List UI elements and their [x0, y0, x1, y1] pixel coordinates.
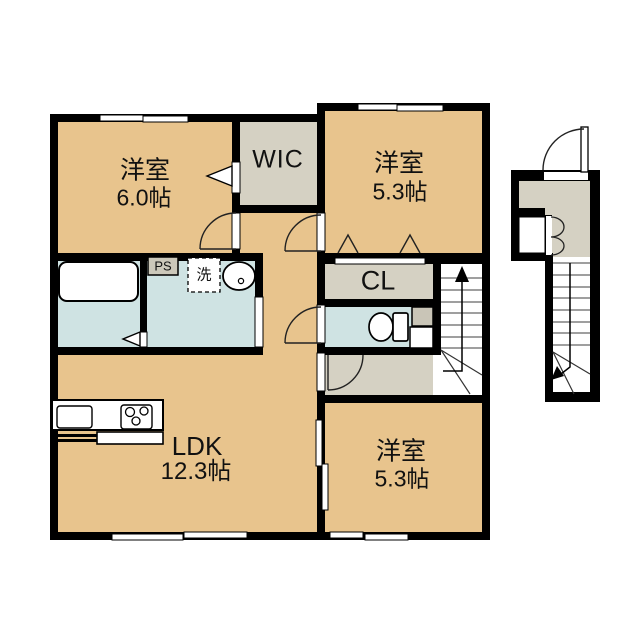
washbasin — [223, 262, 255, 290]
wall — [590, 170, 600, 402]
doorway — [317, 213, 325, 251]
wall — [232, 205, 325, 213]
wall — [317, 299, 433, 307]
wall — [317, 395, 490, 403]
window — [365, 534, 408, 540]
toilet-counter — [410, 327, 433, 348]
sliding-door — [255, 297, 263, 347]
window — [397, 105, 443, 111]
counter-edge — [50, 439, 97, 442]
window — [358, 104, 398, 110]
counter-edge — [50, 434, 97, 437]
doorway — [317, 305, 325, 343]
wall — [433, 253, 441, 355]
ldk-label: LDK — [172, 433, 223, 459]
laundry-label: 洗 — [196, 268, 211, 283]
closet-label: CL — [361, 268, 396, 295]
bedroom-se-label: 洋室 — [376, 440, 426, 465]
bedroom-se-size: 5.3帖 — [375, 468, 430, 491]
entrance-doorway — [544, 172, 588, 180]
sliding-door-leaf — [322, 464, 328, 510]
entrance-block — [511, 127, 600, 402]
floor-plan-drawing — [0, 0, 640, 640]
wall — [482, 103, 490, 540]
toilet-cabinet — [412, 307, 433, 326]
window — [112, 534, 183, 540]
wall — [50, 347, 263, 355]
entry-storage — [519, 217, 545, 253]
bathtub — [59, 262, 138, 301]
toilet-tank — [393, 313, 408, 341]
kitchen-sink — [57, 406, 92, 428]
bedroom-ne-label: 洋室 — [374, 152, 424, 177]
doorway — [232, 213, 240, 249]
ldk-size: 12.3帖 — [161, 460, 232, 484]
entrance-door-leaf — [581, 127, 588, 172]
closet-doorway — [546, 216, 552, 255]
window — [330, 532, 363, 538]
doorway — [317, 353, 325, 391]
toilet-bowl — [369, 313, 393, 341]
wall — [511, 208, 545, 217]
entrance-door-arc — [543, 129, 584, 170]
wic-label: WIC — [252, 148, 304, 173]
bedroom-nw-size: 6.0帖 — [117, 187, 172, 210]
floor-plan: 洋室 6.0帖 WIC 洋室 5.3帖 CL LDK 12.3帖 洋室 5.3帖… — [0, 0, 640, 640]
hall-floor — [325, 355, 433, 395]
bedroom-ne-size: 5.3帖 — [373, 181, 428, 204]
wic-opening — [232, 162, 240, 193]
wall — [50, 114, 58, 540]
window — [143, 116, 188, 122]
corridor-floor — [263, 253, 317, 355]
pipe-space-label: PS — [154, 260, 171, 273]
closet-opening — [335, 258, 425, 264]
window — [184, 532, 247, 538]
sliding-door-leaf — [316, 420, 322, 466]
counter-front — [97, 432, 163, 444]
wall — [545, 392, 600, 402]
bedroom-nw-label: 洋室 — [120, 159, 170, 184]
bath-doorway — [140, 332, 147, 347]
window — [100, 115, 145, 121]
washbasin-drain — [238, 278, 243, 283]
